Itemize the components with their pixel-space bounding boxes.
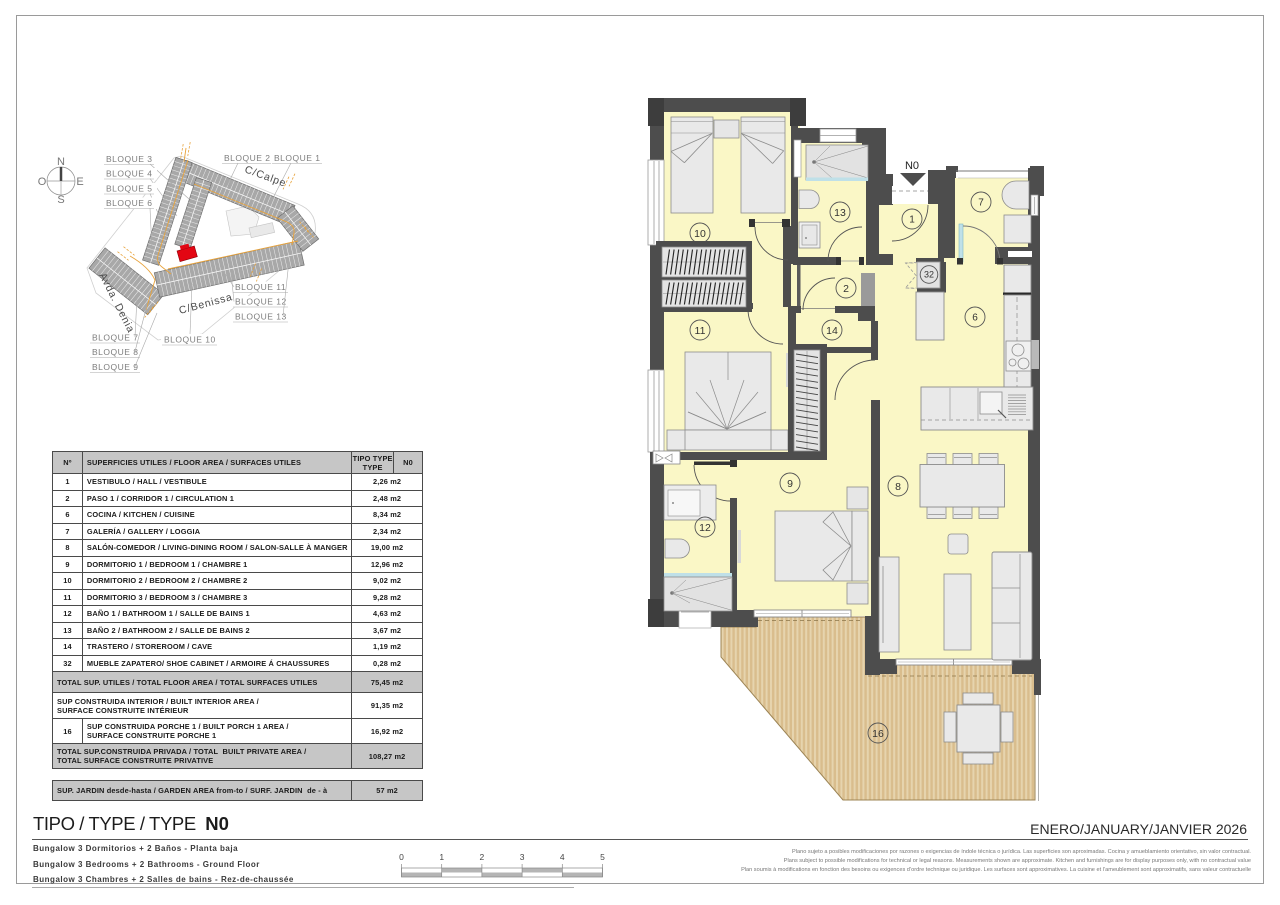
svg-text:BLOQUE 10: BLOQUE 10	[164, 335, 216, 345]
svg-text:3: 3	[520, 852, 525, 862]
svg-text:11: 11	[695, 325, 706, 337]
svg-text:0: 0	[399, 852, 404, 862]
svg-text:BLOQUE 1: BLOQUE 1	[274, 153, 321, 163]
svg-text:8: 8	[895, 481, 901, 493]
svg-text:BLOQUE 3: BLOQUE 3	[106, 154, 153, 164]
svg-text:9: 9	[787, 478, 793, 490]
svg-text:BLOQUE 5: BLOQUE 5	[106, 184, 153, 194]
svg-text:BLOQUE 7: BLOQUE 7	[92, 333, 139, 343]
svg-text:2: 2	[480, 852, 485, 862]
svg-text:BLOQUE 6: BLOQUE 6	[106, 198, 153, 208]
svg-text:7: 7	[978, 198, 984, 209]
svg-text:6: 6	[972, 313, 978, 324]
svg-text:BLOQUE 2: BLOQUE 2	[224, 153, 271, 163]
svg-text:12: 12	[699, 522, 711, 534]
svg-text:C/Calpe: C/Calpe	[243, 164, 288, 190]
svg-text:O: O	[38, 176, 47, 188]
svg-text:16: 16	[872, 728, 884, 740]
svg-text:2: 2	[843, 283, 849, 295]
svg-text:BLOQUE 13: BLOQUE 13	[235, 312, 287, 322]
svg-text:1: 1	[909, 215, 915, 226]
svg-text:BLOQUE 9: BLOQUE 9	[92, 362, 139, 372]
svg-text:BLOQUE 12: BLOQUE 12	[235, 297, 287, 307]
svg-text:BLOQUE 8: BLOQUE 8	[92, 347, 139, 357]
svg-text:BLOQUE 4: BLOQUE 4	[106, 169, 153, 179]
svg-text:4: 4	[560, 852, 565, 862]
svg-text:14: 14	[826, 325, 838, 337]
svg-text:10: 10	[694, 228, 706, 240]
svg-text:N0: N0	[905, 160, 919, 172]
svg-text:E: E	[76, 176, 83, 188]
svg-text:BLOQUE 11: BLOQUE 11	[235, 282, 286, 292]
svg-text:C/Benissa: C/Benissa	[178, 291, 234, 317]
svg-text:S: S	[57, 194, 64, 206]
svg-text:32: 32	[924, 270, 934, 280]
svg-text:13: 13	[834, 207, 846, 219]
svg-text:N: N	[57, 156, 65, 168]
svg-text:1: 1	[439, 852, 444, 862]
